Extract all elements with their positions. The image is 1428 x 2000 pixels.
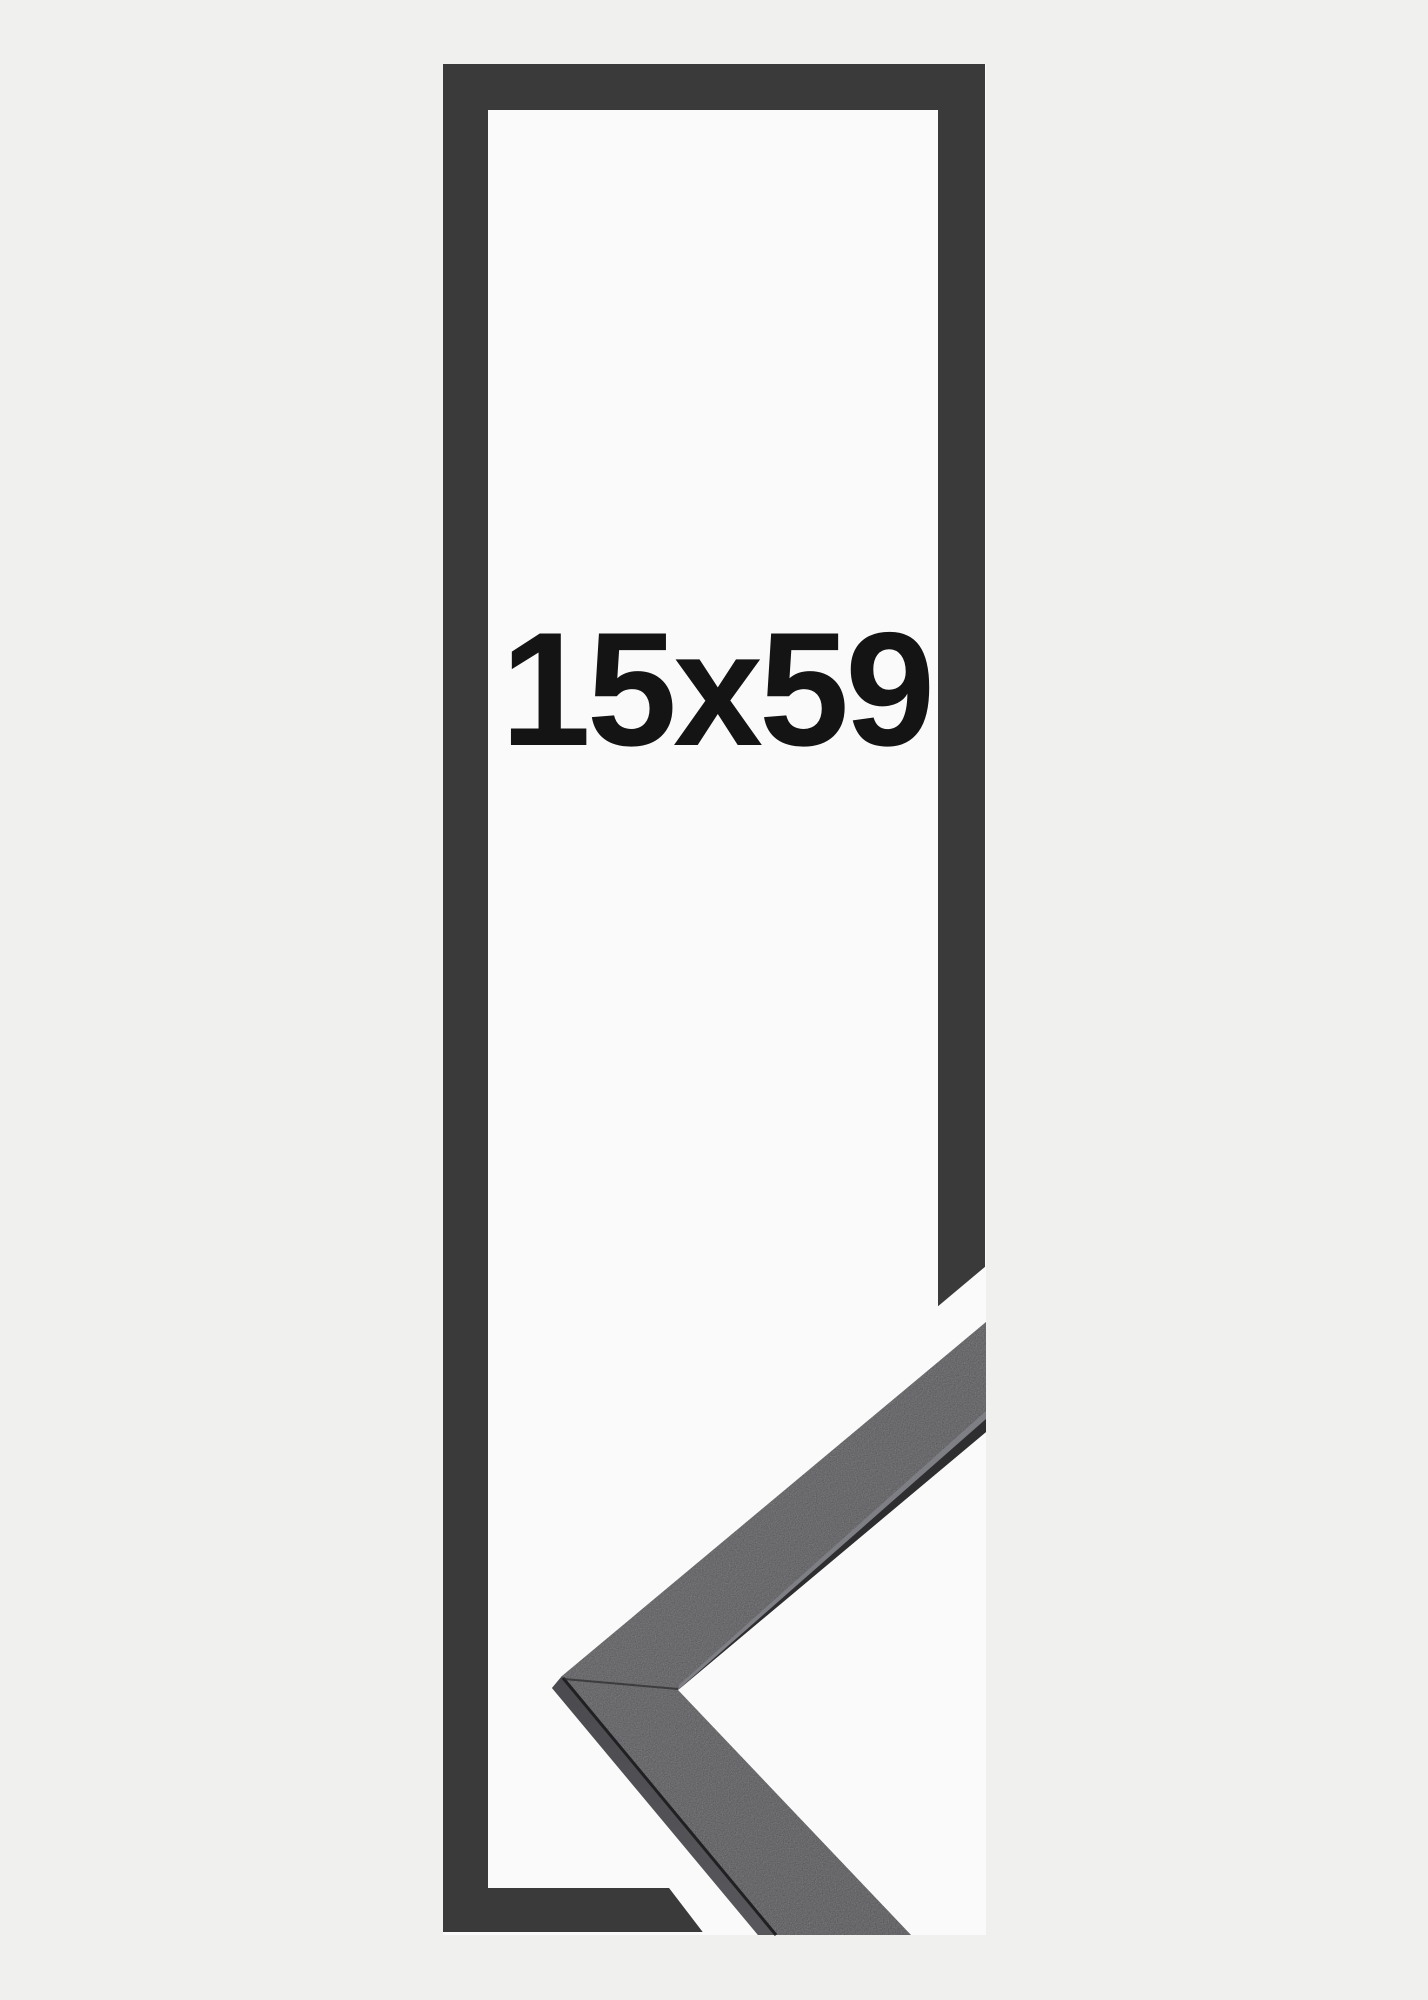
product-image: 15x59 bbox=[0, 0, 1428, 2000]
size-label: 15x59 bbox=[501, 599, 931, 780]
frame-graphic: 15x59 bbox=[0, 0, 1428, 2000]
